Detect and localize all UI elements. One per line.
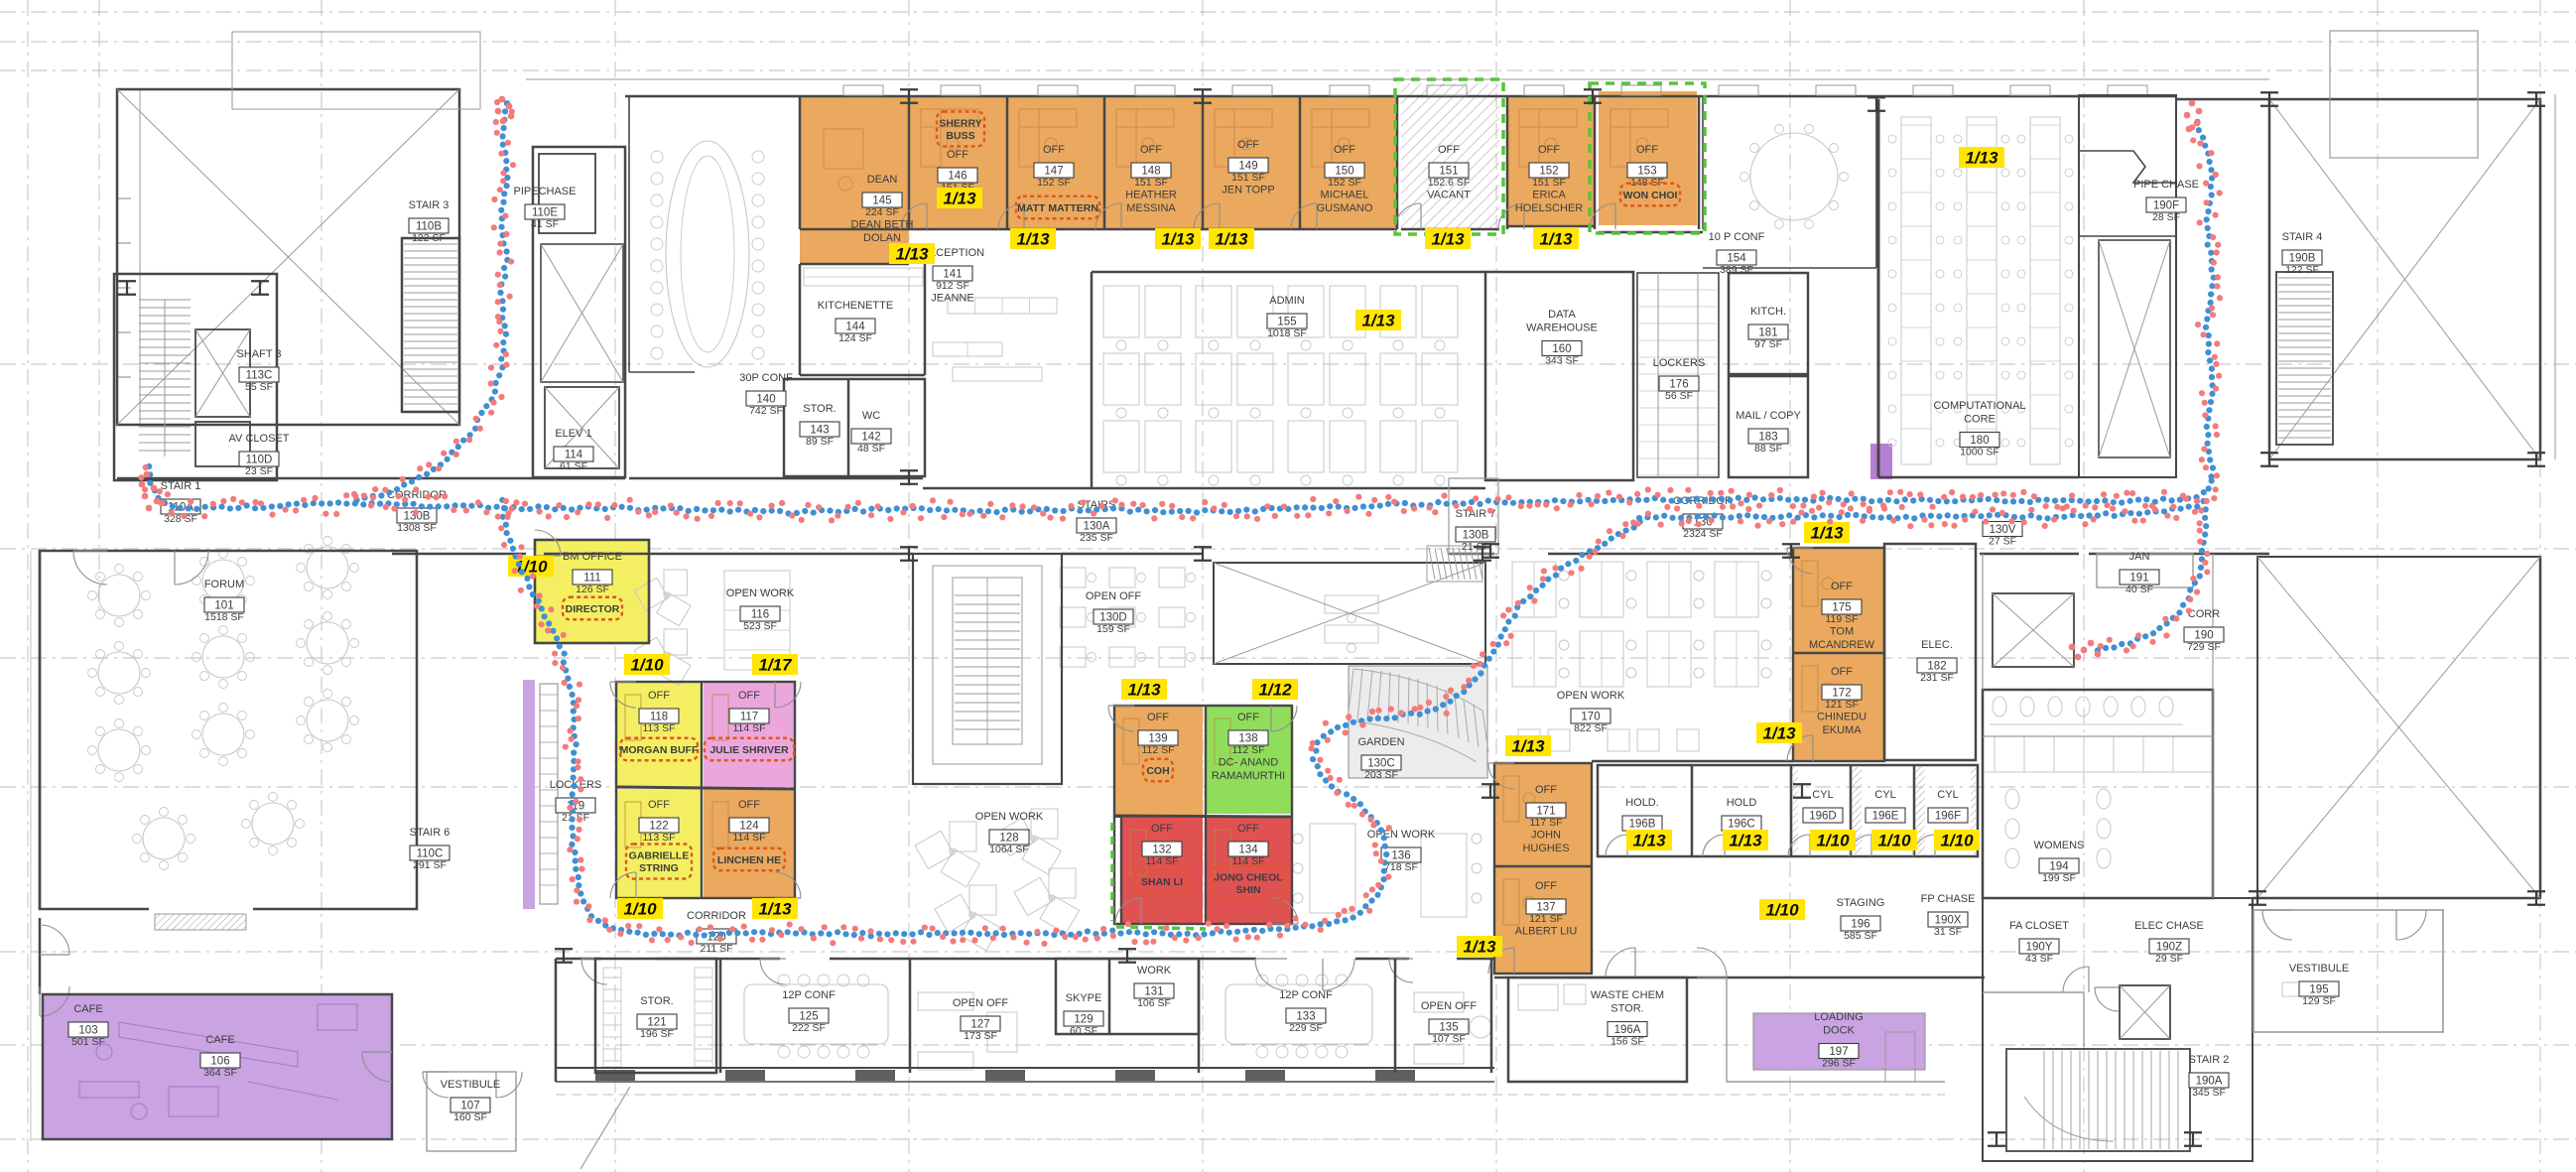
svg-text:103: 103 [78, 1025, 97, 1037]
svg-text:FA CLOSET: FA CLOSET [2009, 920, 2069, 932]
svg-text:152 SF: 152 SF [1328, 177, 1361, 189]
svg-text:110B: 110B [416, 221, 442, 233]
svg-text:OPEN WORK: OPEN WORK [1367, 829, 1436, 841]
svg-text:235 SF: 235 SF [1080, 532, 1113, 544]
svg-text:142: 142 [861, 432, 880, 444]
svg-text:27 SF: 27 SF [1989, 536, 2016, 548]
svg-text:190F: 190F [2153, 200, 2179, 212]
svg-text:21 SF: 21 SF [562, 812, 589, 824]
svg-text:28 SF: 28 SF [2152, 211, 2180, 223]
svg-text:1/13: 1/13 [1632, 832, 1666, 850]
svg-text:SHAFT 3: SHAFT 3 [236, 348, 281, 360]
svg-text:729 SF: 729 SF [2187, 641, 2221, 653]
svg-text:FP CHASE: FP CHASE [1921, 893, 1976, 905]
svg-text:1/10: 1/10 [630, 656, 664, 675]
svg-text:1/13: 1/13 [1463, 938, 1496, 957]
svg-text:106 SF: 106 SF [1137, 997, 1171, 1009]
svg-text:OFF: OFF [738, 690, 760, 702]
svg-text:150: 150 [1335, 166, 1353, 178]
svg-text:1/13: 1/13 [1215, 230, 1248, 249]
svg-text:116: 116 [751, 609, 769, 621]
svg-text:126 SF: 126 SF [576, 584, 609, 595]
svg-text:RAMAMURTHI: RAMAMURTHI [1212, 770, 1285, 782]
svg-text:718 SF: 718 SF [1384, 861, 1418, 873]
svg-text:141: 141 [943, 269, 962, 281]
svg-text:STOR.: STOR. [1610, 1003, 1643, 1015]
svg-text:107: 107 [460, 1101, 479, 1112]
svg-text:171: 171 [1536, 806, 1555, 818]
svg-text:12P CONF: 12P CONF [782, 989, 836, 1001]
svg-text:OFF: OFF [1151, 823, 1173, 835]
svg-text:144: 144 [845, 322, 865, 333]
svg-text:199 SF: 199 SF [2042, 872, 2076, 884]
svg-text:JULIE SHRIVER: JULIE SHRIVER [709, 744, 789, 756]
svg-text:DEAN BETH: DEAN BETH [851, 219, 914, 231]
svg-text:31 SF: 31 SF [1934, 926, 1962, 938]
svg-text:137: 137 [1536, 902, 1555, 914]
svg-text:1/13: 1/13 [1762, 724, 1796, 743]
svg-text:182: 182 [1927, 661, 1946, 673]
svg-text:CORR: CORR [2188, 608, 2220, 620]
svg-text:1518 SF: 1518 SF [204, 611, 244, 623]
svg-text:HUGHES: HUGHES [1522, 843, 1569, 854]
svg-text:CYL: CYL [1937, 789, 1958, 801]
svg-text:121 SF: 121 SF [1825, 699, 1859, 711]
svg-text:196 SF: 196 SF [640, 1028, 674, 1040]
svg-text:WC: WC [862, 410, 880, 422]
svg-text:106: 106 [210, 1056, 229, 1068]
svg-text:GARDEN: GARDEN [1357, 736, 1404, 748]
svg-text:WON CHOI: WON CHOI [1623, 190, 1678, 201]
svg-text:912 SF: 912 SF [936, 280, 969, 292]
svg-text:STAIR 2: STAIR 2 [2189, 1054, 2230, 1066]
svg-text:OFF: OFF [1535, 784, 1557, 796]
svg-text:OFF: OFF [1538, 144, 1560, 156]
svg-text:43 SF: 43 SF [2025, 953, 2053, 965]
svg-text:190: 190 [2194, 630, 2213, 642]
svg-text:501 SF: 501 SF [71, 1036, 105, 1048]
svg-text:113 SF: 113 SF [642, 722, 675, 734]
svg-text:SKYPE: SKYPE [1066, 992, 1102, 1004]
svg-text:146: 146 [948, 171, 966, 183]
svg-text:328 SF: 328 SF [164, 513, 197, 525]
svg-text:23 SF: 23 SF [245, 465, 273, 477]
svg-text:OPEN OFF: OPEN OFF [953, 997, 1009, 1009]
svg-text:345 SF: 345 SF [2192, 1087, 2226, 1099]
svg-text:1308 SF: 1308 SF [397, 522, 437, 534]
svg-text:COH: COH [1146, 765, 1169, 777]
svg-text:OFF: OFF [648, 690, 670, 702]
svg-text:JOHN: JOHN [1531, 830, 1561, 842]
svg-text:114 SF: 114 SF [732, 832, 765, 844]
svg-text:CYL: CYL [1874, 789, 1895, 801]
svg-text:OFF: OFF [1334, 144, 1355, 156]
svg-text:WASTE CHEM: WASTE CHEM [1591, 989, 1664, 1001]
svg-text:742 SF: 742 SF [749, 405, 783, 417]
svg-text:TOM: TOM [1830, 626, 1854, 638]
svg-text:111: 111 [583, 573, 600, 585]
svg-text:DEAN: DEAN [867, 174, 898, 186]
svg-text:56 SF: 56 SF [1665, 390, 1693, 402]
svg-text:180: 180 [1970, 435, 1989, 447]
svg-text:OPEN WORK: OPEN WORK [726, 587, 795, 599]
svg-text:GUSMANO: GUSMANO [1317, 202, 1373, 214]
svg-text:159 SF: 159 SF [1096, 623, 1130, 635]
svg-text:SHAN LI: SHAN LI [1141, 876, 1183, 888]
svg-text:WORK: WORK [1137, 965, 1172, 977]
svg-text:LOADING: LOADING [1814, 1011, 1864, 1023]
svg-text:110C: 110C [417, 848, 444, 860]
svg-text:STAIR 1: STAIR 1 [161, 480, 201, 492]
svg-text:1/12: 1/12 [1258, 681, 1292, 700]
svg-text:KITCHENETTE: KITCHENETTE [818, 300, 893, 312]
svg-text:1/13: 1/13 [895, 245, 929, 264]
svg-text:110D: 110D [246, 455, 273, 466]
svg-text:172: 172 [1832, 688, 1851, 700]
svg-text:113C: 113C [246, 370, 273, 382]
svg-text:ERICA: ERICA [1532, 190, 1566, 201]
svg-text:HEATHER: HEATHER [1125, 190, 1177, 201]
svg-text:1/17: 1/17 [758, 656, 793, 675]
svg-text:107 SF: 107 SF [1432, 1033, 1466, 1045]
svg-text:194: 194 [2049, 861, 2069, 873]
svg-text:VACANT: VACANT [1427, 190, 1471, 201]
svg-text:OFF: OFF [1147, 712, 1169, 723]
svg-text:OFF: OFF [1831, 666, 1853, 678]
svg-text:1/13: 1/13 [1361, 312, 1395, 330]
svg-text:AV CLOSET: AV CLOSET [229, 433, 290, 445]
svg-text:139: 139 [1148, 733, 1167, 745]
svg-text:156 SF: 156 SF [1610, 1036, 1644, 1048]
svg-text:101: 101 [214, 600, 233, 612]
svg-text:CYL: CYL [1812, 789, 1833, 801]
svg-text:197: 197 [1829, 1046, 1848, 1058]
svg-text:1/13: 1/13 [1161, 230, 1195, 249]
svg-text:JONG CHEOL: JONG CHEOL [1214, 872, 1283, 884]
svg-text:196C: 196C [1728, 819, 1755, 831]
svg-text:135: 135 [1439, 1022, 1458, 1034]
svg-text:OPEN OFF: OPEN OFF [1086, 590, 1142, 602]
svg-text:1064 SF: 1064 SF [989, 844, 1029, 855]
svg-text:VESTIBULE: VESTIBULE [441, 1079, 501, 1091]
svg-text:OPEN WORK: OPEN WORK [1557, 690, 1625, 702]
svg-text:CAFE: CAFE [73, 1003, 102, 1015]
svg-text:160 SF: 160 SF [453, 1111, 487, 1123]
svg-text:114 SF: 114 SF [1145, 855, 1178, 867]
svg-text:STOR.: STOR. [640, 995, 673, 1007]
svg-text:MICHAEL: MICHAEL [1321, 190, 1369, 201]
svg-text:130V: 130V [1990, 524, 2016, 536]
svg-text:DOLAN: DOLAN [863, 232, 901, 244]
svg-text:CHINEDU: CHINEDU [1817, 712, 1867, 723]
svg-text:1/10: 1/10 [1877, 832, 1911, 850]
svg-text:343 SF: 343 SF [1545, 355, 1579, 367]
svg-text:OFF: OFF [648, 799, 670, 811]
svg-text:523 SF: 523 SF [743, 620, 777, 632]
svg-text:MESSINA: MESSINA [1126, 202, 1176, 214]
svg-text:190Y: 190Y [2026, 942, 2053, 954]
svg-text:OFF: OFF [1535, 880, 1557, 892]
svg-text:KITCH.: KITCH. [1750, 306, 1786, 318]
svg-text:124: 124 [739, 821, 759, 833]
svg-text:364 SF: 364 SF [203, 1067, 237, 1079]
svg-text:112 SF: 112 SF [1231, 744, 1264, 756]
svg-text:OPEN WORK: OPEN WORK [975, 811, 1044, 823]
svg-text:HOELSCHER: HOELSCHER [1515, 202, 1584, 214]
svg-text:41 SF: 41 SF [531, 218, 559, 230]
svg-text:61 SF: 61 SF [560, 460, 587, 472]
svg-text:STRING: STRING [639, 862, 679, 874]
svg-text:PIPECHASE: PIPECHASE [514, 186, 577, 197]
svg-text:STAIR 3: STAIR 3 [409, 199, 450, 211]
svg-text:153: 153 [1637, 166, 1656, 178]
svg-text:231 SF: 231 SF [1920, 672, 1954, 684]
svg-text:196D: 196D [1809, 811, 1837, 823]
svg-text:OFF: OFF [1438, 144, 1460, 156]
svg-text:SHIN: SHIN [1235, 884, 1260, 896]
svg-text:148: 148 [1141, 166, 1160, 178]
svg-text:WAREHOUSE: WAREHOUSE [1526, 323, 1598, 334]
svg-text:97 SF: 97 SF [1754, 338, 1782, 350]
svg-text:151 SF: 151 SF [1532, 177, 1566, 189]
svg-text:OFF: OFF [1237, 712, 1259, 723]
svg-text:SHERRY: SHERRY [939, 118, 981, 130]
svg-text:130A: 130A [1084, 521, 1110, 533]
svg-text:110E: 110E [532, 207, 558, 219]
svg-text:128: 128 [999, 833, 1018, 845]
svg-text:OPEN OFF: OPEN OFF [1421, 1000, 1478, 1012]
svg-text:117: 117 [740, 712, 758, 723]
svg-text:147: 147 [1044, 166, 1063, 178]
svg-text:154: 154 [1727, 253, 1746, 265]
svg-text:134: 134 [1238, 845, 1258, 856]
svg-text:1/13: 1/13 [1431, 230, 1465, 249]
svg-text:STOR.: STOR. [803, 403, 836, 415]
svg-text:122 SF: 122 SF [412, 232, 446, 244]
svg-text:183: 183 [1758, 432, 1777, 444]
svg-text:JEANNE: JEANNE [931, 293, 973, 305]
svg-text:DOCK: DOCK [1823, 1025, 1855, 1037]
svg-text:GABRIELLE: GABRIELLE [629, 850, 690, 862]
svg-text:1/13: 1/13 [1127, 681, 1161, 700]
svg-text:129: 129 [1074, 1014, 1093, 1026]
svg-text:130D: 130D [1099, 612, 1127, 624]
svg-text:STAIR 6: STAIR 6 [410, 827, 451, 839]
svg-text:2324 SF: 2324 SF [1683, 528, 1723, 540]
svg-text:191: 191 [2129, 573, 2148, 585]
svg-text:122: 122 [649, 821, 668, 833]
svg-text:1/13: 1/13 [1729, 832, 1762, 850]
svg-text:1/10: 1/10 [1940, 832, 1974, 850]
svg-text:12P CONF: 12P CONF [1279, 989, 1333, 1001]
svg-text:224 SF: 224 SF [865, 206, 899, 218]
svg-text:130C: 130C [1367, 758, 1395, 770]
svg-text:ADMIN: ADMIN [1269, 295, 1305, 307]
svg-text:1/10: 1/10 [1816, 832, 1850, 850]
svg-text:822 SF: 822 SF [1574, 722, 1608, 734]
svg-text:160: 160 [1552, 343, 1571, 355]
svg-text:ELEC CHASE: ELEC CHASE [2134, 920, 2204, 932]
svg-text:291 SF: 291 SF [413, 859, 447, 871]
svg-text:HOLD: HOLD [1727, 797, 1757, 809]
svg-text:DIRECTOR: DIRECTOR [566, 603, 620, 615]
svg-text:OFF: OFF [1636, 144, 1658, 156]
svg-text:118: 118 [650, 712, 668, 723]
svg-text:190Z: 190Z [2156, 942, 2182, 954]
svg-text:196A: 196A [1614, 1024, 1641, 1036]
svg-text:119 SF: 119 SF [1825, 613, 1858, 625]
svg-text:OFF: OFF [1237, 823, 1259, 835]
svg-text:125: 125 [799, 1011, 818, 1023]
svg-text:121: 121 [647, 1017, 666, 1029]
svg-text:VESTIBULE: VESTIBULE [2289, 963, 2350, 975]
svg-text:138: 138 [1238, 733, 1257, 745]
svg-text:196F: 196F [1935, 811, 1961, 823]
svg-text:145: 145 [872, 195, 891, 207]
svg-text:152.6 SF: 152.6 SF [1428, 177, 1471, 189]
svg-text:10 P CONF: 10 P CONF [1709, 231, 1765, 243]
svg-text:170: 170 [1581, 712, 1600, 723]
svg-text:MCANDREW: MCANDREW [1809, 639, 1875, 651]
svg-text:ELEC.: ELEC. [1921, 639, 1953, 651]
svg-text:196: 196 [1851, 919, 1869, 931]
svg-text:114: 114 [565, 450, 583, 461]
svg-text:149: 149 [1238, 161, 1257, 173]
svg-text:196E: 196E [1872, 811, 1899, 823]
svg-text:COMPUTATIONAL: COMPUTATIONAL [1933, 400, 2025, 412]
svg-text:29 SF: 29 SF [2155, 953, 2183, 965]
svg-text:DC- ANAND: DC- ANAND [1219, 757, 1279, 769]
svg-text:WOMENS: WOMENS [2034, 840, 2085, 851]
svg-text:585 SF: 585 SF [1844, 930, 1877, 942]
svg-text:181: 181 [1758, 327, 1777, 339]
svg-text:1/13: 1/13 [1539, 230, 1573, 249]
svg-text:MAIL / COPY: MAIL / COPY [1736, 410, 1801, 422]
svg-text:229 SF: 229 SF [1289, 1022, 1323, 1034]
svg-text:OFF: OFF [1140, 144, 1162, 156]
svg-text:151 SF: 151 SF [1134, 177, 1168, 189]
svg-text:55 SF: 55 SF [245, 381, 273, 393]
svg-text:122 SF: 122 SF [2285, 264, 2319, 276]
svg-text:BM OFFICE: BM OFFICE [563, 551, 622, 563]
svg-text:222 SF: 222 SF [792, 1022, 826, 1034]
svg-text:130B: 130B [1463, 530, 1489, 542]
svg-text:BUSS: BUSS [946, 130, 974, 142]
svg-text:1/13: 1/13 [1016, 230, 1050, 249]
svg-text:30P CONF: 30P CONF [739, 372, 793, 384]
svg-text:ALBERT LIU: ALBERT LIU [1515, 926, 1578, 938]
svg-text:190B: 190B [2289, 253, 2316, 265]
svg-text:175: 175 [1832, 602, 1851, 614]
svg-text:296 SF: 296 SF [1822, 1058, 1856, 1070]
svg-text:152: 152 [1539, 166, 1558, 178]
svg-text:124 SF: 124 SF [838, 332, 872, 344]
svg-text:CORRIDOR: CORRIDOR [687, 910, 746, 922]
svg-text:131: 131 [1144, 986, 1163, 998]
svg-text:127: 127 [970, 1019, 989, 1031]
svg-text:EKUMA: EKUMA [1822, 724, 1862, 736]
svg-text:112 SF: 112 SF [1141, 744, 1174, 756]
svg-text:155: 155 [1277, 317, 1296, 328]
svg-text:1018 SF: 1018 SF [1267, 327, 1307, 339]
svg-text:PIPE CHASE: PIPE CHASE [2133, 179, 2199, 191]
svg-text:OFF: OFF [947, 149, 968, 161]
svg-text:STAGING: STAGING [1837, 897, 1885, 909]
svg-text:1/13: 1/13 [758, 900, 792, 919]
svg-text:133: 133 [1296, 1011, 1315, 1023]
svg-text:136: 136 [1391, 850, 1410, 862]
svg-text:196B: 196B [1629, 819, 1656, 831]
svg-text:121 SF: 121 SF [1529, 913, 1563, 925]
svg-text:MORGAN BUFF: MORGAN BUFF [620, 744, 699, 756]
svg-text:DATA: DATA [1548, 309, 1576, 321]
svg-text:MATT MATTERN: MATT MATTERN [1017, 202, 1098, 214]
svg-text:88 SF: 88 SF [1754, 443, 1782, 455]
svg-text:117 SF: 117 SF [1529, 817, 1562, 829]
svg-text:CORE: CORE [1964, 414, 1996, 426]
svg-text:1000 SF: 1000 SF [1960, 447, 1999, 458]
svg-text:1/13: 1/13 [1965, 149, 1998, 168]
svg-text:1/10: 1/10 [623, 900, 657, 919]
svg-text:89 SF: 89 SF [806, 436, 834, 448]
svg-text:129 SF: 129 SF [2302, 995, 2336, 1007]
svg-text:60 SF: 60 SF [1070, 1025, 1097, 1037]
svg-text:173 SF: 173 SF [964, 1030, 997, 1042]
svg-text:151: 151 [1439, 166, 1458, 178]
svg-text:132: 132 [1152, 845, 1171, 856]
svg-text:190A: 190A [2196, 1076, 2223, 1088]
svg-text:CAFE: CAFE [205, 1034, 234, 1046]
svg-text:OFF: OFF [1237, 139, 1259, 151]
svg-text:176: 176 [1669, 379, 1688, 391]
svg-text:140: 140 [756, 394, 775, 406]
svg-text:1/13: 1/13 [1511, 737, 1545, 756]
svg-text:195: 195 [2309, 984, 2328, 996]
svg-text:143: 143 [810, 425, 829, 437]
svg-text:STAIR 4: STAIR 4 [2282, 231, 2323, 243]
svg-text:389 SF: 389 SF [1720, 264, 1753, 276]
svg-text:OFF: OFF [738, 799, 760, 811]
svg-text:152 SF: 152 SF [1037, 177, 1071, 189]
svg-text:ELEV 1: ELEV 1 [555, 428, 591, 440]
svg-text:HOLD.: HOLD. [1625, 797, 1659, 809]
svg-text:211 SF: 211 SF [700, 943, 732, 955]
svg-text:1/13: 1/13 [1810, 524, 1844, 543]
svg-text:FORUM: FORUM [204, 579, 244, 590]
svg-text:JEN TOPP: JEN TOPP [1222, 185, 1274, 196]
svg-text:JAN: JAN [2129, 551, 2150, 563]
svg-text:203 SF: 203 SF [1364, 769, 1398, 781]
svg-text:114 SF: 114 SF [732, 722, 765, 734]
svg-text:OFF: OFF [1831, 581, 1853, 592]
svg-text:151 SF: 151 SF [1231, 172, 1265, 184]
svg-text:1/13: 1/13 [943, 190, 976, 208]
svg-text:OFF: OFF [1043, 144, 1065, 156]
svg-text:LINCHEN HE: LINCHEN HE [717, 854, 781, 866]
svg-text:48 SF: 48 SF [857, 443, 885, 455]
svg-text:LOCKERS: LOCKERS [1653, 357, 1706, 369]
svg-text:40 SF: 40 SF [2125, 584, 2153, 595]
svg-text:113 SF: 113 SF [642, 832, 675, 844]
svg-text:1/10: 1/10 [1765, 901, 1799, 920]
svg-text:190X: 190X [1935, 915, 1962, 927]
